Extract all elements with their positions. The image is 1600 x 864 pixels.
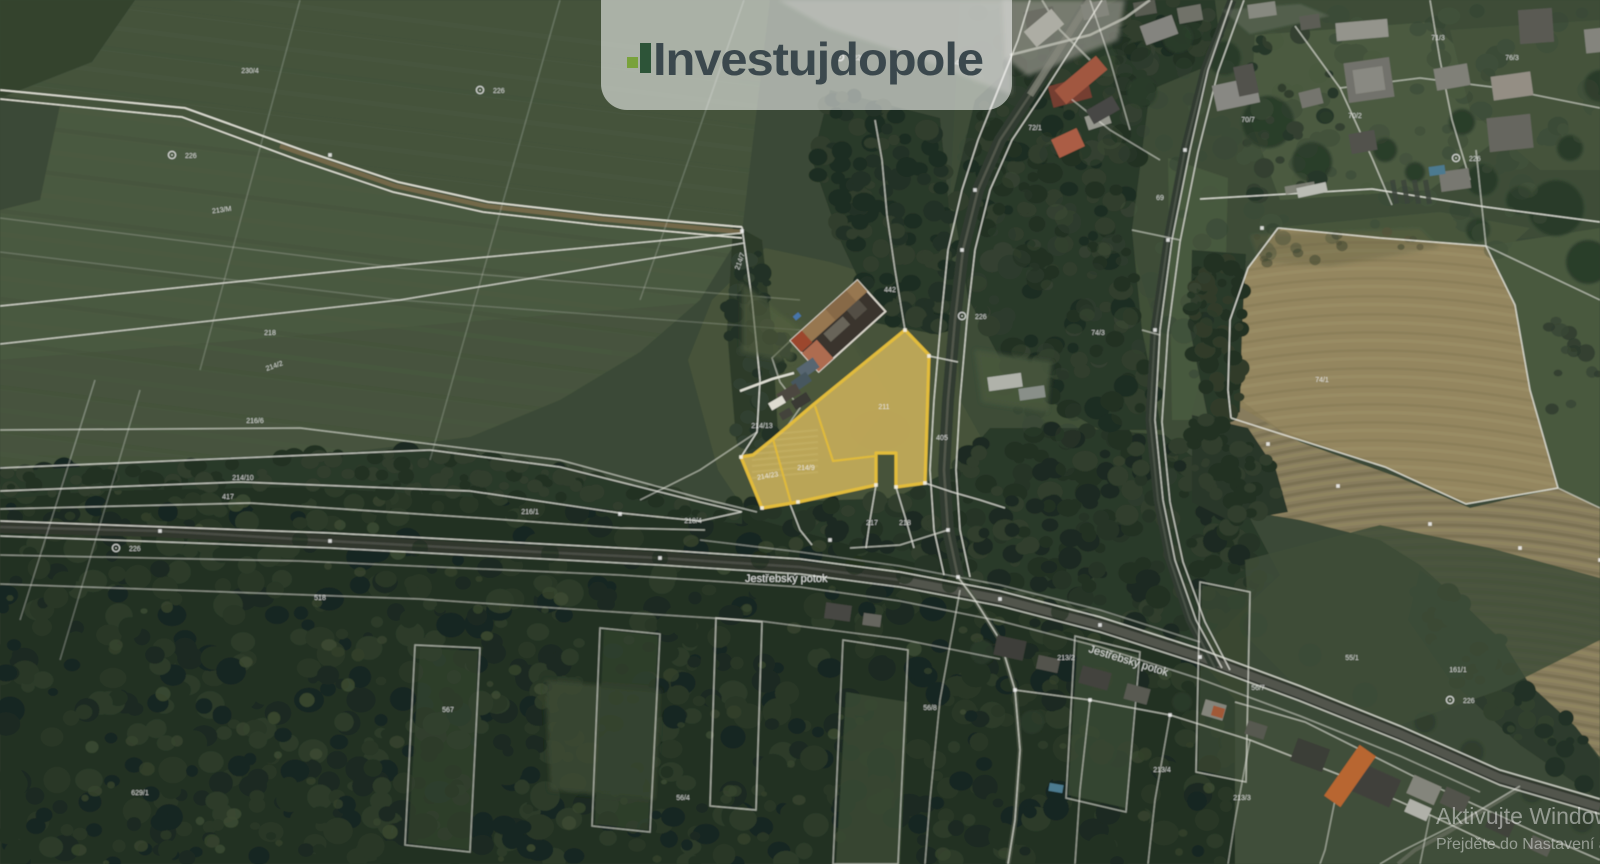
svg-text:Přejděte do Nastavení a aktivu: Přejděte do Nastavení a aktivu bbox=[1436, 836, 1600, 853]
svg-text:Aktivujte Windows: Aktivujte Windows bbox=[1436, 803, 1600, 829]
svg-text:Investujdopole: Investujdopole bbox=[653, 33, 983, 85]
